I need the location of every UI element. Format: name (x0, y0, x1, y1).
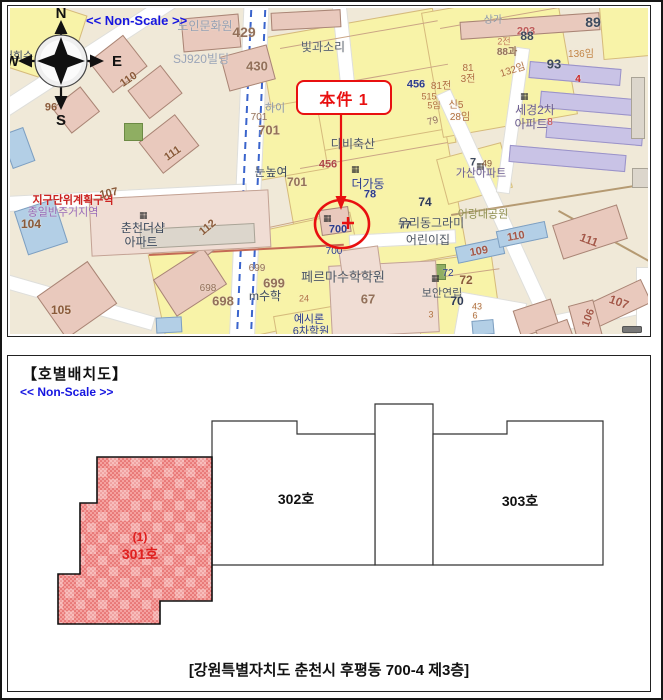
map-label: 2전 (497, 38, 510, 47)
map-label: 어린이집 (406, 234, 450, 246)
map-label: 67 (361, 293, 375, 306)
map-label: 어랑대공원 (458, 210, 509, 221)
map-label: 6 (472, 312, 477, 321)
map-label: 136임 (568, 50, 594, 60)
unit-layout-panel: 302호303호(1)301호 【호별배치도】 << Non-Scale >> … (7, 355, 651, 692)
floor-plan-svg: 302호303호(1)301호 (8, 356, 649, 690)
map-label: 88과 (497, 48, 517, 58)
floor-plan-shapes: 302호303호(1)301호 (58, 404, 603, 624)
map-label: 24 (299, 295, 309, 304)
building-icon: ▦ (139, 211, 148, 220)
map-label: 72 (442, 269, 453, 279)
compass-s-label: S (56, 112, 66, 129)
map-label: 세경2차 (515, 104, 555, 116)
map-label: 456 (319, 160, 337, 171)
map-building (631, 77, 645, 139)
map-label: 701 (251, 113, 268, 123)
map-label: 74 (418, 196, 431, 208)
map-label: 빛과소리 (301, 41, 345, 53)
subject-callout: 本件 1 (296, 80, 392, 115)
map-building (37, 261, 118, 334)
unit-303-label: 303호 (502, 493, 538, 509)
map-label: 3 (428, 311, 433, 320)
map-label: 5임 (427, 102, 440, 111)
map-label: 430 (246, 60, 268, 73)
map-label: 7 (470, 158, 476, 169)
compass-n-label: N (56, 8, 67, 22)
map-label: 700 (329, 225, 347, 236)
appraisal-figure-page: << Non-Scale >> N S W E (0, 0, 663, 700)
map-non-scale-label: << Non-Scale >> (86, 14, 187, 27)
map-label: 4 (575, 75, 581, 85)
map-building (156, 316, 183, 333)
map-label: 701 (258, 124, 280, 137)
map-label: 3전 (461, 75, 476, 85)
map-label: 춘천더샵 (121, 222, 165, 234)
map-label: 429 (232, 25, 255, 39)
map-label: 81전 (431, 82, 451, 92)
map-label: 88 (520, 30, 533, 42)
map-label: 아파트 (124, 236, 157, 248)
map-label: 78 (364, 190, 376, 201)
plan-title: 【호별배치도】 (22, 363, 128, 384)
map-label: 698 (200, 284, 217, 294)
map-label: m수학 (249, 290, 281, 302)
compass-e-label: E (112, 53, 122, 70)
map-label: 700 (326, 247, 343, 257)
map-label: 상가 (484, 16, 502, 26)
map-label: 81 (462, 64, 473, 74)
map-label: 89 (585, 15, 601, 29)
compass-west-arrow (18, 55, 32, 68)
map-label: 아파트 (514, 118, 547, 130)
map-building (545, 121, 643, 146)
unit-301-sublabel: (1) (133, 530, 148, 544)
building-icon: ▦ (520, 92, 529, 101)
map-label: 49 (482, 160, 492, 169)
map-building (632, 168, 648, 188)
map-label: 우리동그라미 (398, 217, 464, 229)
map-label: 105 (51, 304, 71, 316)
map-parcel (599, 8, 648, 60)
map-label: 699 (263, 277, 285, 290)
building-icon: ▦ (351, 165, 360, 174)
map-label: 눈높여 (254, 166, 287, 178)
compass-w-label: W (10, 53, 20, 70)
map-label: 93 (547, 58, 561, 71)
map-label: 6차학원 (293, 327, 329, 335)
map-label: 초 (647, 163, 648, 173)
subject-callout-label: 本件 1 (319, 86, 368, 110)
map-label: 가산아파트 (456, 169, 507, 180)
compass-south-arrow (55, 96, 68, 110)
map-building (471, 319, 494, 334)
map-label: 28임 (450, 113, 470, 123)
compass-east-arrow (90, 55, 104, 68)
map-building (139, 114, 200, 174)
location-map-panel: << Non-Scale >> N S W E (7, 5, 651, 337)
map-label: 8 (547, 118, 553, 128)
unit-shaft-outline (375, 404, 433, 565)
map-label: 신5 (449, 101, 464, 111)
unit-302-label: 302호 (278, 491, 314, 507)
map-scalebar-icon (622, 326, 642, 333)
compass-north-arrow (55, 20, 68, 34)
building-icon: ▦ (323, 214, 332, 223)
plan-non-scale-label: << Non-Scale >> (20, 385, 113, 399)
map-building (508, 145, 626, 172)
map-label: 699 (249, 264, 266, 274)
map-label: 456 (407, 80, 425, 91)
map-label: 698 (212, 295, 234, 308)
map-label: 하이 (265, 104, 285, 115)
map-label: 다비축산 (331, 138, 375, 150)
map-canvas: << Non-Scale >> N S W E (10, 8, 648, 334)
map-label: 70 (450, 295, 463, 307)
map-building (271, 9, 342, 31)
plan-caption: [강원특별자치도 춘천시 후평동 700-4 제3층] (8, 659, 650, 680)
building-icon: ▦ (431, 274, 440, 283)
map-label: 701 (287, 176, 307, 188)
map-label: 페르마수학학원 (301, 271, 385, 284)
map-label: 예시론 (294, 315, 324, 326)
unit-301-label: 301호 (122, 546, 158, 562)
map-label: 104 (21, 218, 41, 230)
map-label: 72 (459, 274, 472, 286)
map-label: SJ920빌딩 (173, 53, 229, 65)
